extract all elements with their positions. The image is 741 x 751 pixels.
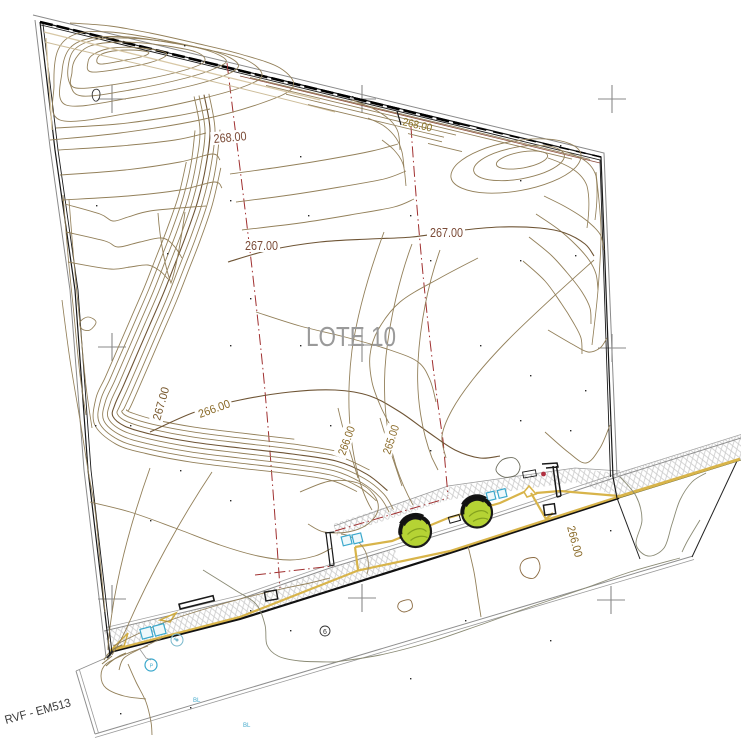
svg-text:268.00: 268.00 [213,129,247,146]
svg-text:×: × [173,637,177,643]
svg-text:BL: BL [243,723,251,729]
svg-text:267.00: 267.00 [245,239,278,253]
svg-text:LOTE 10: LOTE 10 [306,321,396,352]
svg-text:6: 6 [323,629,327,636]
svg-text:BL: BL [193,698,201,704]
svg-text:267.00: 267.00 [430,226,463,240]
